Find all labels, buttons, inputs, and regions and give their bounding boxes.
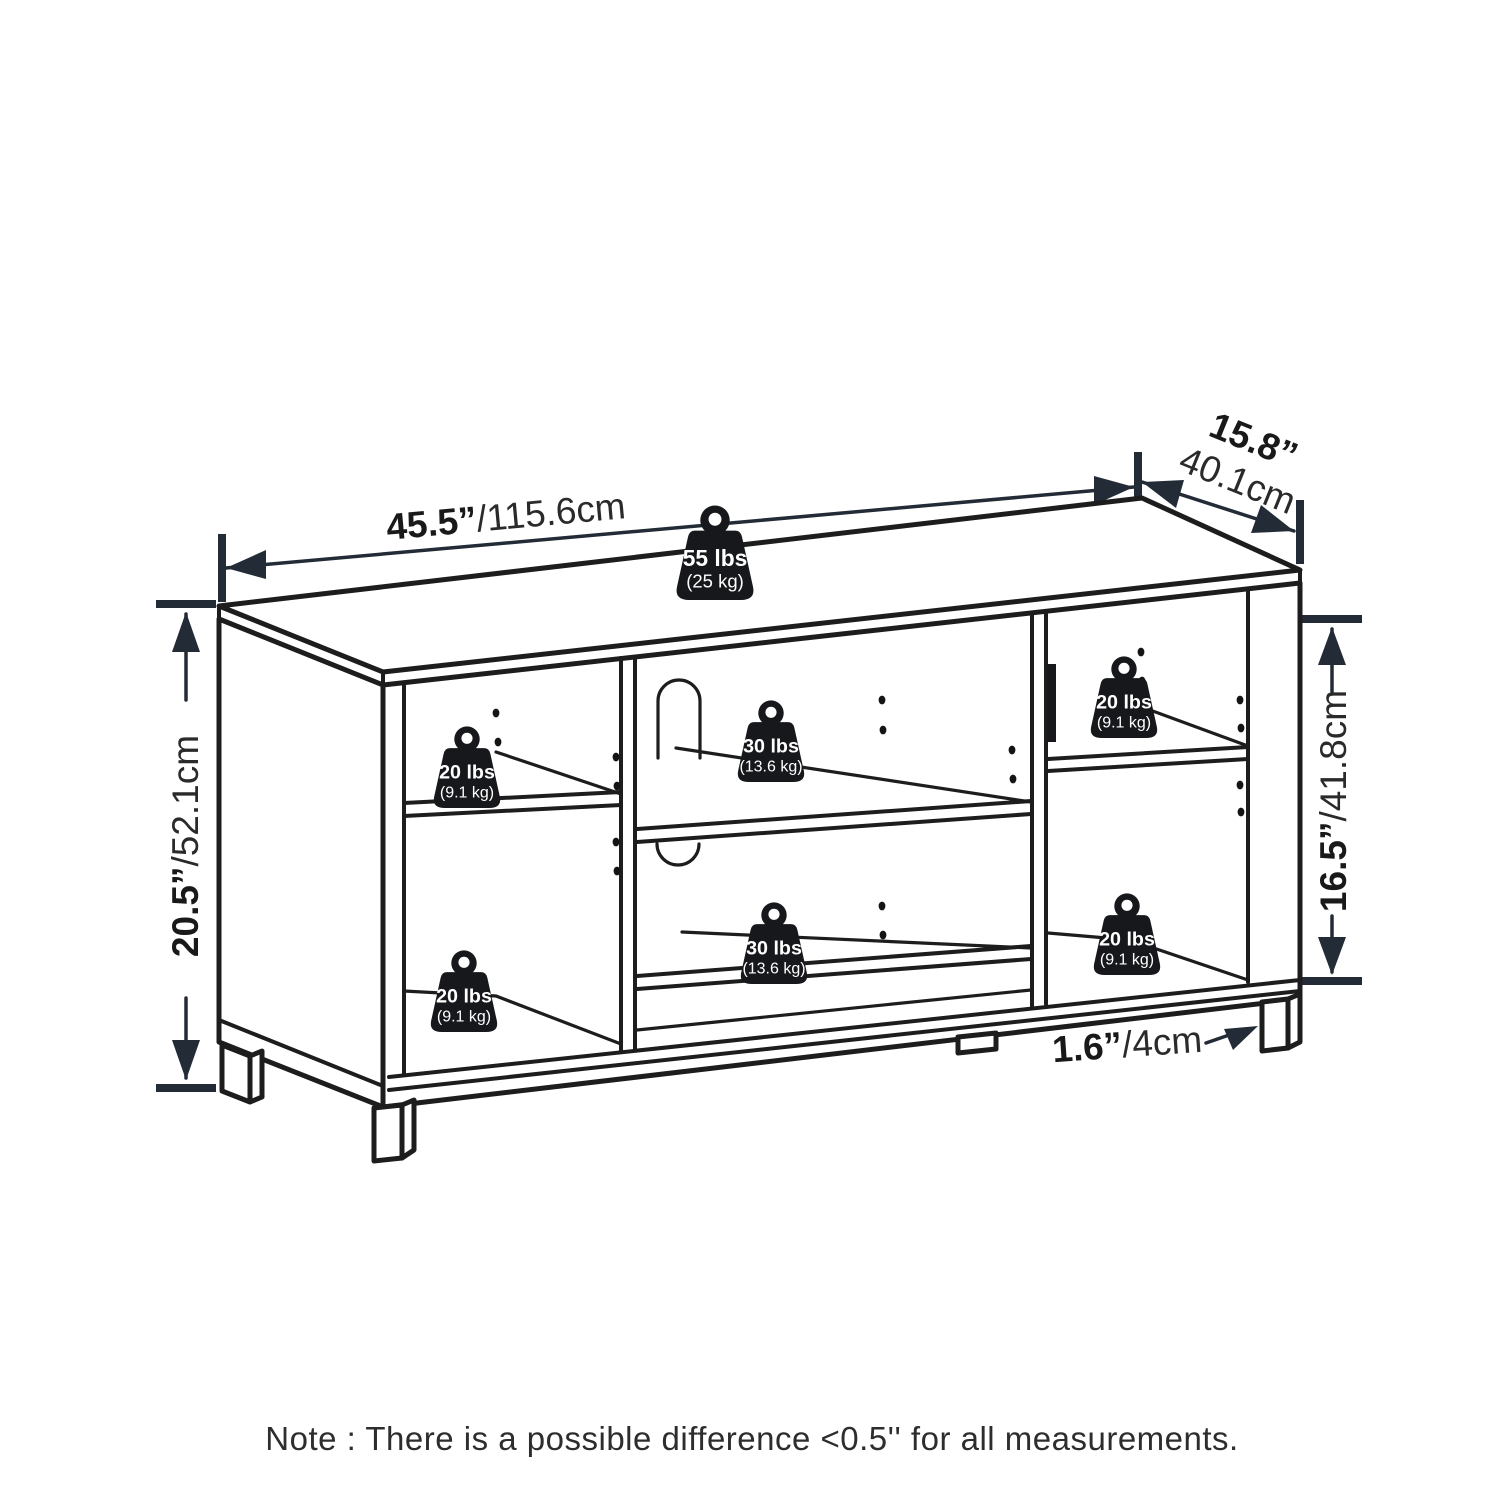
interior-height-dimension-label: 16.5”/41.8cm bbox=[1313, 690, 1354, 912]
height-arrow-down-icon bbox=[172, 1040, 200, 1080]
load-lbs-label: 30 lbs bbox=[746, 937, 802, 959]
load-kg-label: (13.6 kg) bbox=[742, 960, 805, 977]
leg-height-arrow-icon bbox=[1224, 1026, 1258, 1050]
width-dimension-label: 45.5”/115.6cm bbox=[385, 485, 628, 548]
load-kg-label: (9.1 kg) bbox=[440, 784, 494, 801]
shelf-pin-hole bbox=[495, 738, 502, 747]
load-badge-top-surface: 55 lbs (25 kg) bbox=[677, 505, 754, 600]
load-lbs-label: 20 lbs bbox=[1096, 691, 1152, 713]
door-hinge-plate bbox=[1047, 664, 1056, 742]
shelf-pin-hole bbox=[879, 696, 886, 705]
shelf-pin-hole bbox=[879, 902, 886, 911]
leg-back-left bbox=[222, 1045, 250, 1102]
leg-back-left-side bbox=[250, 1051, 262, 1102]
shelf-pin-hole bbox=[1238, 808, 1245, 817]
shelf-pin-hole bbox=[880, 726, 887, 735]
rear-foot-glimpse bbox=[958, 1033, 996, 1053]
shelf-pin-hole bbox=[1238, 724, 1245, 733]
width-arrow-left-icon bbox=[226, 550, 266, 579]
shelf-pin-hole bbox=[1237, 696, 1244, 705]
shelf-pin-hole bbox=[880, 931, 887, 940]
load-lbs-label: 20 lbs bbox=[439, 761, 495, 783]
measurement-note: Note : There is a possible difference <0… bbox=[265, 1420, 1238, 1457]
shelf-pin-hole bbox=[614, 782, 621, 791]
load-lbs-label: 20 lbs bbox=[1099, 928, 1155, 950]
leg-height-annotation: 1.6”/4cm bbox=[1051, 1019, 1258, 1070]
weight-ring-hole bbox=[461, 733, 472, 744]
weight-ring-hole bbox=[1121, 900, 1132, 911]
shelf-pin-hole bbox=[493, 709, 500, 718]
shelf-pin-hole bbox=[1009, 746, 1016, 755]
interior-height-arrow-up-icon bbox=[1318, 627, 1346, 665]
weight-ring-hole bbox=[709, 513, 722, 526]
weight-ring-hole bbox=[1118, 663, 1129, 674]
shelf-pin-hole bbox=[1237, 781, 1244, 790]
shelf-pin-hole bbox=[613, 753, 620, 762]
shelf-pin-hole bbox=[613, 838, 620, 847]
furniture-dimension-diagram: 55 lbs (25 kg) 20 lbs (9.1 kg) 20 lbs (9… bbox=[0, 0, 1500, 1500]
load-kg-label: (25 kg) bbox=[686, 571, 744, 592]
shelf-pin-hole bbox=[614, 867, 621, 876]
diagram-canvas: 55 lbs (25 kg) 20 lbs (9.1 kg) 20 lbs (9… bbox=[0, 0, 1500, 1500]
shelf-pin-hole bbox=[1010, 775, 1017, 784]
leg-front-left-side bbox=[402, 1100, 414, 1158]
height-arrow-up-icon bbox=[172, 612, 200, 652]
cabinet-side-panel bbox=[219, 619, 383, 1107]
leg-front-right-side bbox=[1288, 994, 1300, 1048]
leg-front-right bbox=[1262, 999, 1288, 1051]
shelf-pin-hole bbox=[1138, 648, 1145, 657]
load-lbs-label: 30 lbs bbox=[743, 735, 799, 757]
leg-front-left bbox=[374, 1105, 402, 1161]
weight-ring-hole bbox=[458, 957, 469, 968]
load-kg-label: (9.1 kg) bbox=[1100, 951, 1154, 968]
load-lbs-label: 55 lbs bbox=[683, 545, 748, 571]
load-lbs-label: 20 lbs bbox=[436, 985, 492, 1007]
load-kg-label: (13.6 kg) bbox=[739, 758, 802, 775]
interior-height-arrow-down-icon bbox=[1318, 937, 1346, 975]
load-kg-label: (9.1 kg) bbox=[1097, 714, 1151, 731]
weight-ring-hole bbox=[768, 909, 779, 920]
height-dimension-label: 20.5”/52.1cm bbox=[165, 735, 206, 957]
load-kg-label: (9.1 kg) bbox=[437, 1008, 491, 1025]
weight-ring-hole bbox=[765, 707, 776, 718]
